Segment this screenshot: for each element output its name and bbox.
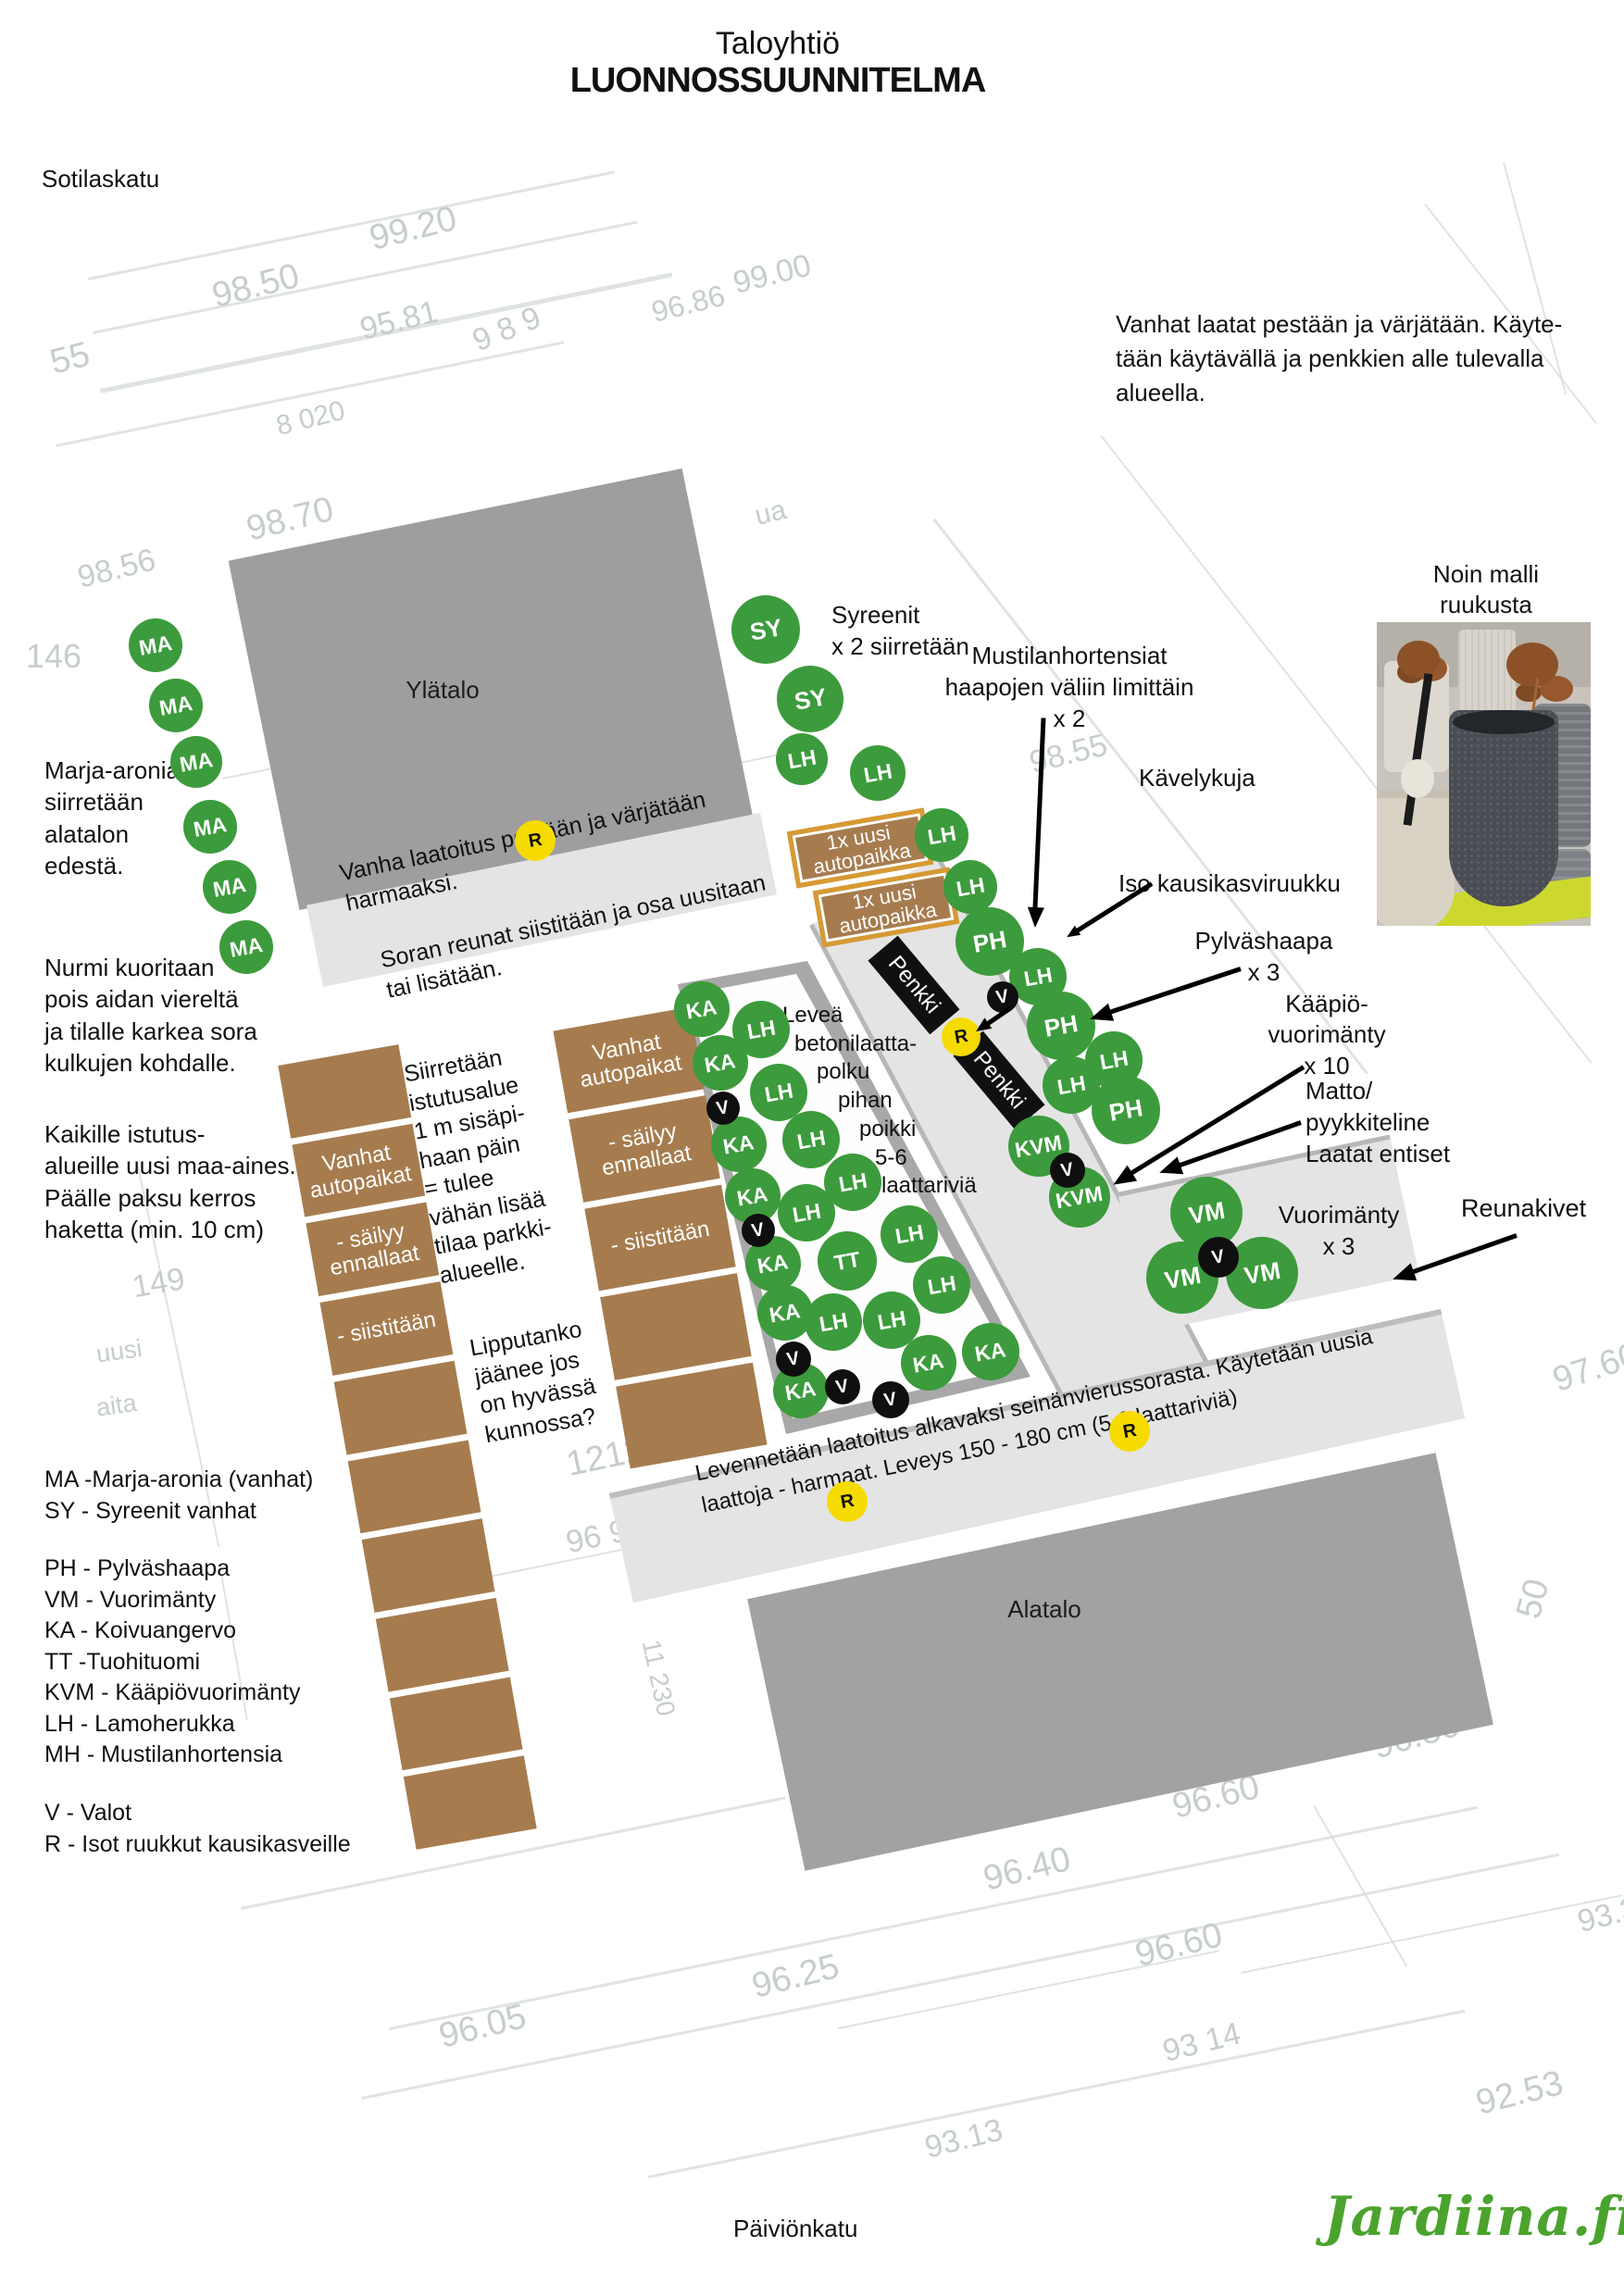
circle-label: LH (1098, 1045, 1131, 1075)
plant-circle-KA: KA (711, 1117, 767, 1172)
note-mustilanhortensiat-line: haapojen väliin limittäin (912, 672, 1227, 704)
circle-label: V (1059, 1159, 1075, 1182)
note-pylvashaapa-line: Pylväshaapa (1194, 926, 1333, 957)
circle-label: MA (211, 872, 248, 903)
note-marja-aroniat: Marja-aroniatsiirretäänalatalonedestä. (44, 755, 186, 881)
note-kaapiovuorimanty: Kääpiö-vuorimäntyx 10 (1257, 989, 1396, 1081)
arrow-head (1156, 1156, 1183, 1181)
note-mustilanhortensiat-line: x 2 (912, 704, 1227, 735)
pot-circle-R: R (827, 1481, 868, 1522)
circle-label: LH (893, 1219, 926, 1249)
circle-label: LH (1022, 962, 1055, 992)
circle-label: KA (768, 1298, 802, 1328)
map-survey-number: 96.05 (435, 1997, 531, 2057)
building-ylatalo-label: Ylätalo (378, 676, 507, 705)
plant-circle-KA: KA (901, 1335, 956, 1391)
circle-label: LH (1056, 1070, 1088, 1100)
circle-label: KA (911, 1348, 945, 1378)
circle-label: MA (157, 691, 194, 721)
parking-stall: - säilyyennallaat (306, 1203, 439, 1296)
plant-circle-MA: MA (129, 618, 182, 672)
circle-label: LH (791, 1198, 823, 1228)
plant-circle-VM: VM (1170, 1177, 1243, 1249)
map-survey-number: uusi (94, 1334, 144, 1369)
circle-label: LH (955, 872, 987, 902)
plant-circle-SY: SY (731, 595, 800, 664)
circle-label: MA (137, 630, 174, 661)
light-circle-V: V (872, 1381, 909, 1418)
plant-circle-PH: PH (1092, 1076, 1160, 1144)
legend-old-plants-line: SY - Syreenit vanhat (44, 1496, 313, 1528)
note-marja-aroniat-line: edestä. (44, 850, 186, 881)
circle-label: VM (1186, 1195, 1227, 1229)
circle-label: KA (973, 1337, 1007, 1366)
circle-label: MA (228, 932, 265, 963)
legend-new-plants-line: VM - Vuorimänty (44, 1585, 301, 1616)
circle-label: V (994, 986, 1010, 1009)
plant-circle-LH: LH (915, 808, 968, 862)
parking-stall (348, 1440, 481, 1533)
note-marja-aroniat-line: Marja-aroniat (44, 755, 186, 786)
map-survey-number: aita (94, 1389, 138, 1423)
map-survey-number: 96.86 (648, 279, 729, 330)
plant-circle-TT: TT (818, 1231, 877, 1291)
circle-label: V (785, 1348, 801, 1371)
plant-circle-KA: KA (693, 1035, 748, 1091)
note-kaapiovuorimanty-line: Kääpiö- (1257, 989, 1396, 1019)
legend-new-plants-line: PH - Pylväshaapa (44, 1554, 301, 1585)
map-survey-number: 8 020 (273, 395, 348, 443)
parking-stall (390, 1677, 523, 1770)
plant-circle-LH: LH (776, 733, 828, 785)
circle-label: KA (756, 1249, 790, 1279)
note-reunakivet-line: Reunakivet (1461, 1192, 1586, 1225)
legend-new-plants-line: MH - Mustilanhortensia (44, 1740, 301, 1771)
note-kaikille: Kaikille istutus-alueille uusi maa-aines… (44, 1118, 296, 1245)
light-circle-V: V (825, 1369, 860, 1404)
map-survey-number: 92.53 (1472, 2064, 1568, 2124)
note-pylvashaapa-line: x 3 (1194, 957, 1333, 989)
map-survey-number: 98.56 (74, 542, 159, 595)
map-survey-number: 96.60 (1131, 1915, 1227, 1976)
map-survey-number: 11 230 (636, 1637, 681, 1718)
photo-caption: Noin malliruukusta (1412, 559, 1560, 619)
parking-stall: - siistitään (320, 1281, 454, 1375)
parking-stall: - säilyyennallaat (568, 1096, 719, 1203)
legend-new-plants-line: KA - Koivuangervo (44, 1616, 301, 1647)
photo-caption-line: Noin malli (1412, 559, 1560, 590)
circle-label: SY (747, 613, 784, 647)
circle-label: LH (926, 1270, 958, 1300)
photo-dark-pot-rim (1453, 710, 1555, 734)
plant-circle-LH: LH (881, 1205, 938, 1263)
note-matto-line: Matto/ (1305, 1076, 1450, 1107)
legend-new-plants: PH - PylväshaapaVM - VuorimäntyKA - Koiv… (44, 1554, 301, 1771)
arrow-line (1405, 1233, 1518, 1277)
photo-caption-line: ruukusta (1412, 590, 1560, 620)
circle-label: LH (745, 1015, 778, 1044)
light-circle-V: V (1050, 1153, 1085, 1188)
map-survey-number: 93.3 (1574, 1890, 1624, 1940)
note-matto-line: pyykkiteline (1305, 1107, 1450, 1139)
circle-label: LH (786, 744, 818, 774)
map-survey-number: 97.60 (1548, 1336, 1624, 1401)
map-survey-number: 149 (130, 1261, 188, 1305)
plant-circle-MA: MA (183, 800, 237, 854)
light-circle-V: V (776, 1341, 811, 1377)
note-betonilaattapolku-line: polku (782, 1058, 977, 1087)
plant-circle-LH: LH (782, 1111, 840, 1168)
map-survey-number: 98.50 (208, 256, 304, 317)
legend-symbols: V - ValotR - Isot ruukkut kausikasveille (44, 1798, 351, 1860)
circle-label: LH (837, 1167, 869, 1197)
note-old-slabs: Vanhat laatat pestään ja värjätään. Käyt… (1116, 307, 1562, 410)
circle-label: LH (862, 758, 894, 788)
circle-label: SY (792, 682, 829, 717)
circle-label: KA (735, 1181, 769, 1211)
note-matto: Matto/pyykkitelineLaatat entiset (1305, 1076, 1450, 1169)
circle-label: R (527, 829, 543, 852)
circle-label: KA (721, 1129, 756, 1159)
note-nurmi-line: pois aidan viereltä (44, 983, 257, 1015)
circle-label: V (882, 1389, 898, 1412)
street-sotilaskatu: Sotilaskatu (42, 165, 159, 193)
map-line (648, 2010, 1466, 2178)
plant-circle-MA: MA (219, 920, 273, 974)
circle-label: MA (178, 747, 215, 778)
plant-circle-KA: KA (674, 981, 730, 1037)
circle-label: R (1121, 1419, 1138, 1442)
parking-stall (334, 1361, 468, 1454)
note-nurmi-line: kulkujen kohdalle. (44, 1047, 257, 1079)
plant-circle-LH: LH (913, 1256, 970, 1314)
note-syreenit-line: Syreenit (831, 600, 969, 631)
jardiina-logo: Jardiina.fi (1324, 2185, 1620, 2248)
pot-circle-R: R (1109, 1411, 1150, 1452)
circle-label: KA (684, 994, 718, 1024)
note-old-slabs-line: alueella. (1116, 376, 1562, 410)
plant-circle-LH: LH (805, 1293, 862, 1351)
note-kaapiovuorimanty-line: vuorimänty (1257, 1019, 1396, 1050)
circle-label: LH (818, 1307, 850, 1337)
note-marja-aroniat-line: alatalon (44, 818, 186, 850)
circle-label: V (834, 1376, 850, 1399)
arrow-head (1027, 907, 1044, 929)
legend-symbols-line: V - Valot (44, 1798, 351, 1829)
note-reunakivet: Reunakivet (1461, 1192, 1586, 1225)
map-survey-number: 50 (1509, 1575, 1557, 1623)
circle-label: PH (1043, 1009, 1081, 1043)
map-line (88, 170, 615, 281)
note-old-slabs-line: tään käytävällä ja penkkien alle tuleval… (1116, 342, 1562, 376)
arrow-head (1087, 1004, 1114, 1029)
plant-circle-LH: LH (943, 860, 997, 914)
circle-label: LH (926, 820, 958, 850)
circle-label: V (715, 1097, 731, 1120)
plant-circle-KA: KA (757, 1285, 813, 1341)
map-survey-number: 99.00 (730, 247, 815, 301)
map-survey-number: 55 (46, 335, 94, 383)
note-kaikille-line: Kaikille istutus- (44, 1118, 296, 1150)
legend-old-plants-line: MA -Marja-aronia (vanhat) (44, 1465, 313, 1496)
plant-circle-LH: LH (850, 745, 906, 801)
circle-label: VM (1242, 1255, 1282, 1290)
pot-circle-R: R (515, 820, 556, 861)
plan-title: Taloyhtiö (583, 26, 972, 62)
parking-stall-label: - siistitään (335, 1308, 438, 1349)
light-circle-V: V (1198, 1237, 1239, 1278)
arrow-line (1072, 881, 1154, 935)
map-survey-number: 95.81 (356, 293, 442, 347)
circle-label: R (839, 1490, 856, 1513)
circle-label: V (1210, 1246, 1226, 1269)
circle-label: LH (795, 1125, 828, 1154)
map-survey-number: 146 (26, 637, 81, 676)
pot-photo (1377, 622, 1591, 926)
parking-stall (404, 1756, 537, 1850)
parking-stall (278, 1044, 411, 1138)
note-kavelykuja: Kävelykuja (1139, 763, 1255, 794)
map-line (361, 1853, 1559, 2100)
light-circle-V: V (706, 1092, 740, 1125)
map-survey-number: 93 14 (1159, 2015, 1244, 2069)
circle-label: MA (192, 812, 229, 842)
light-circle-V: V (987, 981, 1018, 1013)
note-matto-line: Laatat entiset (1305, 1139, 1450, 1170)
plant-circle-SY: SY (777, 666, 843, 732)
note-kaikille-line: alueille uusi maa-aines. (44, 1150, 296, 1181)
circle-label: TT (832, 1246, 862, 1275)
photo-dried-flowers-right (1506, 643, 1558, 687)
parking-stall-label: - siistitään (609, 1217, 712, 1258)
circle-label: KA (703, 1048, 737, 1078)
note-nurmi: Nurmi kuoritaanpois aidan viereltäja til… (44, 952, 257, 1079)
circle-label: PH (1107, 1093, 1145, 1128)
note-mustilanhortensiat-line: Mustilanhortensiat (912, 641, 1227, 672)
parking-stall (362, 1518, 495, 1612)
circle-label: LH (876, 1305, 908, 1335)
photo-dried-flowers-left (1397, 641, 1440, 678)
legend-new-plants-line: KVM - Kääpiövuorimänty (44, 1678, 301, 1709)
map-survey-number: ua (752, 494, 790, 532)
note-mustilanhortensiat: Mustilanhortensiathaapojen väliin limitt… (912, 641, 1227, 734)
photo-dark-pot (1449, 710, 1558, 906)
legend-old-plants: MA -Marja-aronia (vanhat)SY - Syreenit v… (44, 1465, 313, 1527)
note-marja-aroniat-line: siirretään (44, 786, 186, 817)
plant-circle-KA: KA (962, 1323, 1019, 1380)
note-kaikille-line: Päälle paksu kerros (44, 1182, 296, 1214)
plant-circle-PH: PH (1027, 992, 1095, 1060)
circle-label: R (953, 1025, 969, 1048)
note-old-slabs-line: Vanhat laatat pestään ja värjätään. Käyt… (1116, 307, 1562, 342)
map-survey-number: 96.25 (748, 1947, 843, 2007)
plant-circle-LH: LH (778, 1184, 835, 1242)
note-nurmi-line: ja tilalle karkea sora (44, 1016, 257, 1047)
plant-circle-MA: MA (170, 736, 222, 788)
note-lipputanko: Lipputankojäänee joson hyvässäkunnossa? (468, 1315, 603, 1450)
circle-label: V (750, 1219, 766, 1242)
photo-rope-blob (1401, 759, 1434, 798)
parking-stall: - siistitään (584, 1184, 735, 1291)
arrow-line (1102, 967, 1242, 1017)
legend-symbols-line: R - Isot ruukkut kausikasveille (44, 1829, 351, 1861)
note-vuorimanty-line: Vuorimänty (1265, 1200, 1413, 1231)
parking-stall: Vanhatautopaikat (292, 1123, 425, 1217)
circle-label: LH (763, 1078, 795, 1107)
plan-page: 99.2098.5095.81559 8 996.8699.008 02098.… (0, 0, 1624, 2296)
legend-new-plants-line: LH - Lamoherukka (44, 1709, 301, 1741)
note-kaikille-line: haketta (min. 10 cm) (44, 1214, 296, 1245)
plant-circle-MA: MA (203, 860, 256, 914)
circle-label: VM (1162, 1260, 1203, 1294)
map-survey-number: 99.20 (366, 199, 461, 259)
photo-cream-pot (1377, 791, 1455, 926)
plant-circle-MA: MA (149, 679, 203, 732)
circle-label: PH (971, 925, 1009, 959)
note-kavelykuja-line: Kävelykuja (1139, 763, 1255, 794)
street-paivionkatu: Päiviönkatu (733, 2215, 857, 2243)
parking-stall (600, 1273, 751, 1379)
circle-label: KA (783, 1376, 818, 1405)
plan-subtitle: LUONNOSSUUNNITELMA (556, 61, 1000, 101)
building-alatalo-label: Alatalo (980, 1595, 1109, 1624)
parking-stall (376, 1598, 509, 1691)
legend-new-plants-line: TT -Tuohituomi (44, 1647, 301, 1678)
light-circle-V: V (742, 1214, 775, 1247)
